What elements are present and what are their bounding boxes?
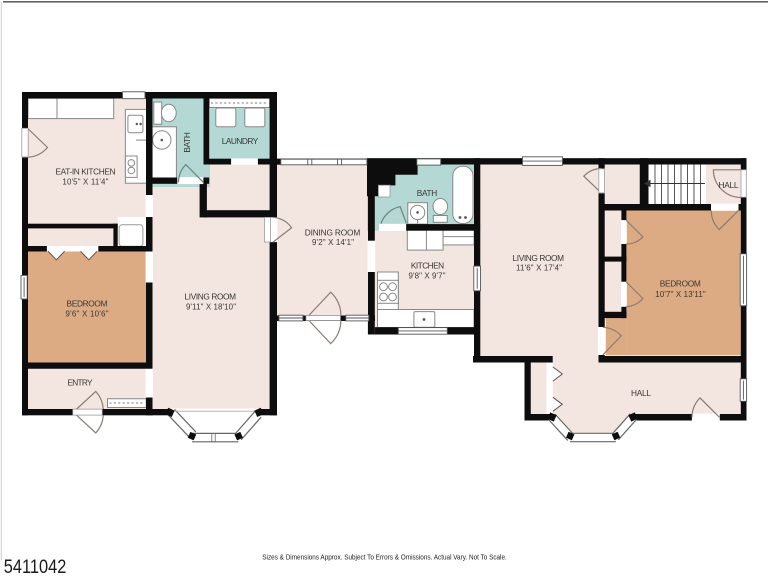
svg-text:BATH: BATH xyxy=(417,188,438,198)
svg-text:9'6" X 10'6": 9'6" X 10'6" xyxy=(66,309,109,318)
svg-text:DINING ROOM: DINING ROOM xyxy=(305,228,361,238)
svg-text:9'2" X 14'1": 9'2" X 14'1" xyxy=(312,238,354,247)
svg-text:ENTRY: ENTRY xyxy=(68,378,93,388)
svg-text:11'6" X 17'4": 11'6" X 17'4" xyxy=(516,264,562,273)
svg-text:KITCHEN: KITCHEN xyxy=(411,261,444,271)
svg-text:HALL: HALL xyxy=(719,180,739,190)
svg-text:Sizes & Dimensions Approx. Sub: Sizes & Dimensions Approx. Subject To Er… xyxy=(262,552,507,561)
svg-text:LIVING ROOM: LIVING ROOM xyxy=(513,253,565,263)
svg-text:EAT-IN KITCHEN: EAT-IN KITCHEN xyxy=(56,167,116,177)
svg-text:BEDROOM: BEDROOM xyxy=(660,278,701,288)
svg-text:10'7" X 13'11": 10'7" X 13'11" xyxy=(655,290,706,299)
svg-text:9'8" X 9'7": 9'8" X 9'7" xyxy=(409,271,446,280)
svg-text:HALL: HALL xyxy=(631,388,651,398)
svg-text:10'5" X 11'4": 10'5" X 11'4" xyxy=(62,178,108,187)
svg-text:BATH: BATH xyxy=(182,132,192,153)
svg-text:BEDROOM: BEDROOM xyxy=(67,298,108,308)
svg-text:LIVING ROOM: LIVING ROOM xyxy=(185,292,237,302)
svg-text:5411042: 5411042 xyxy=(4,557,67,576)
svg-text:LAUNDRY: LAUNDRY xyxy=(222,136,259,146)
svg-text:9'11" X 18'10": 9'11" X 18'10" xyxy=(186,303,236,312)
